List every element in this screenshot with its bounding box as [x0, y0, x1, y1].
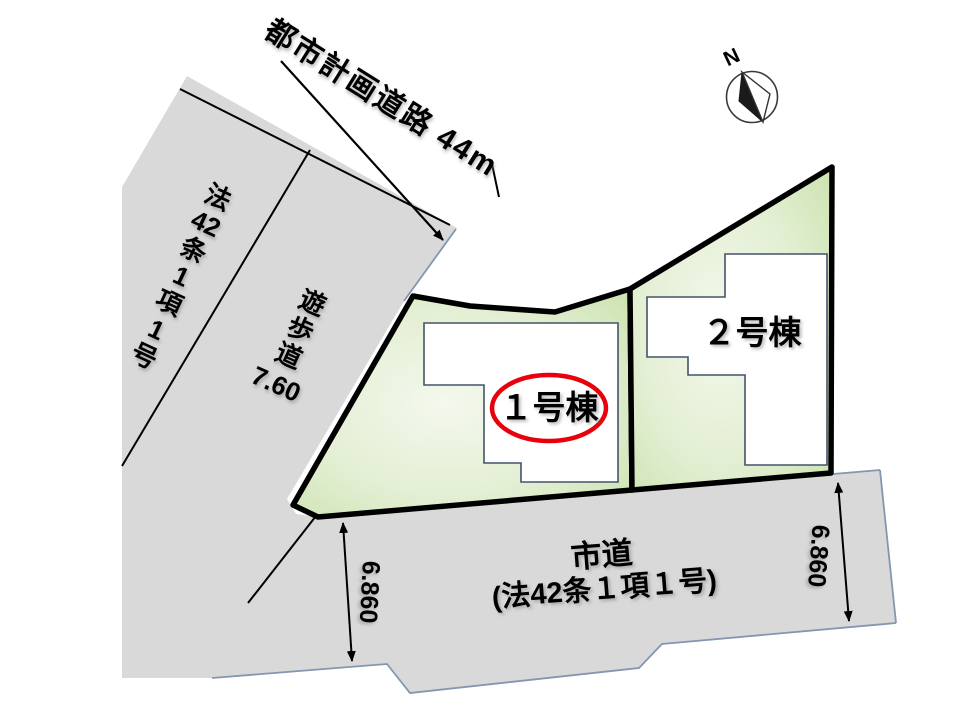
compass-icon — [727, 72, 778, 123]
dimension-left-label: 6.860 — [353, 560, 385, 624]
lot-1-label: １号棟 — [500, 389, 599, 427]
dimension-right-label: 6.860 — [801, 524, 834, 588]
lot-2-label: ２号棟 — [703, 314, 802, 352]
site-plan: 都市計画道路 44m 法 42 条 1 項 1 号 遊 歩 道 7.60 １号棟… — [0, 0, 960, 720]
